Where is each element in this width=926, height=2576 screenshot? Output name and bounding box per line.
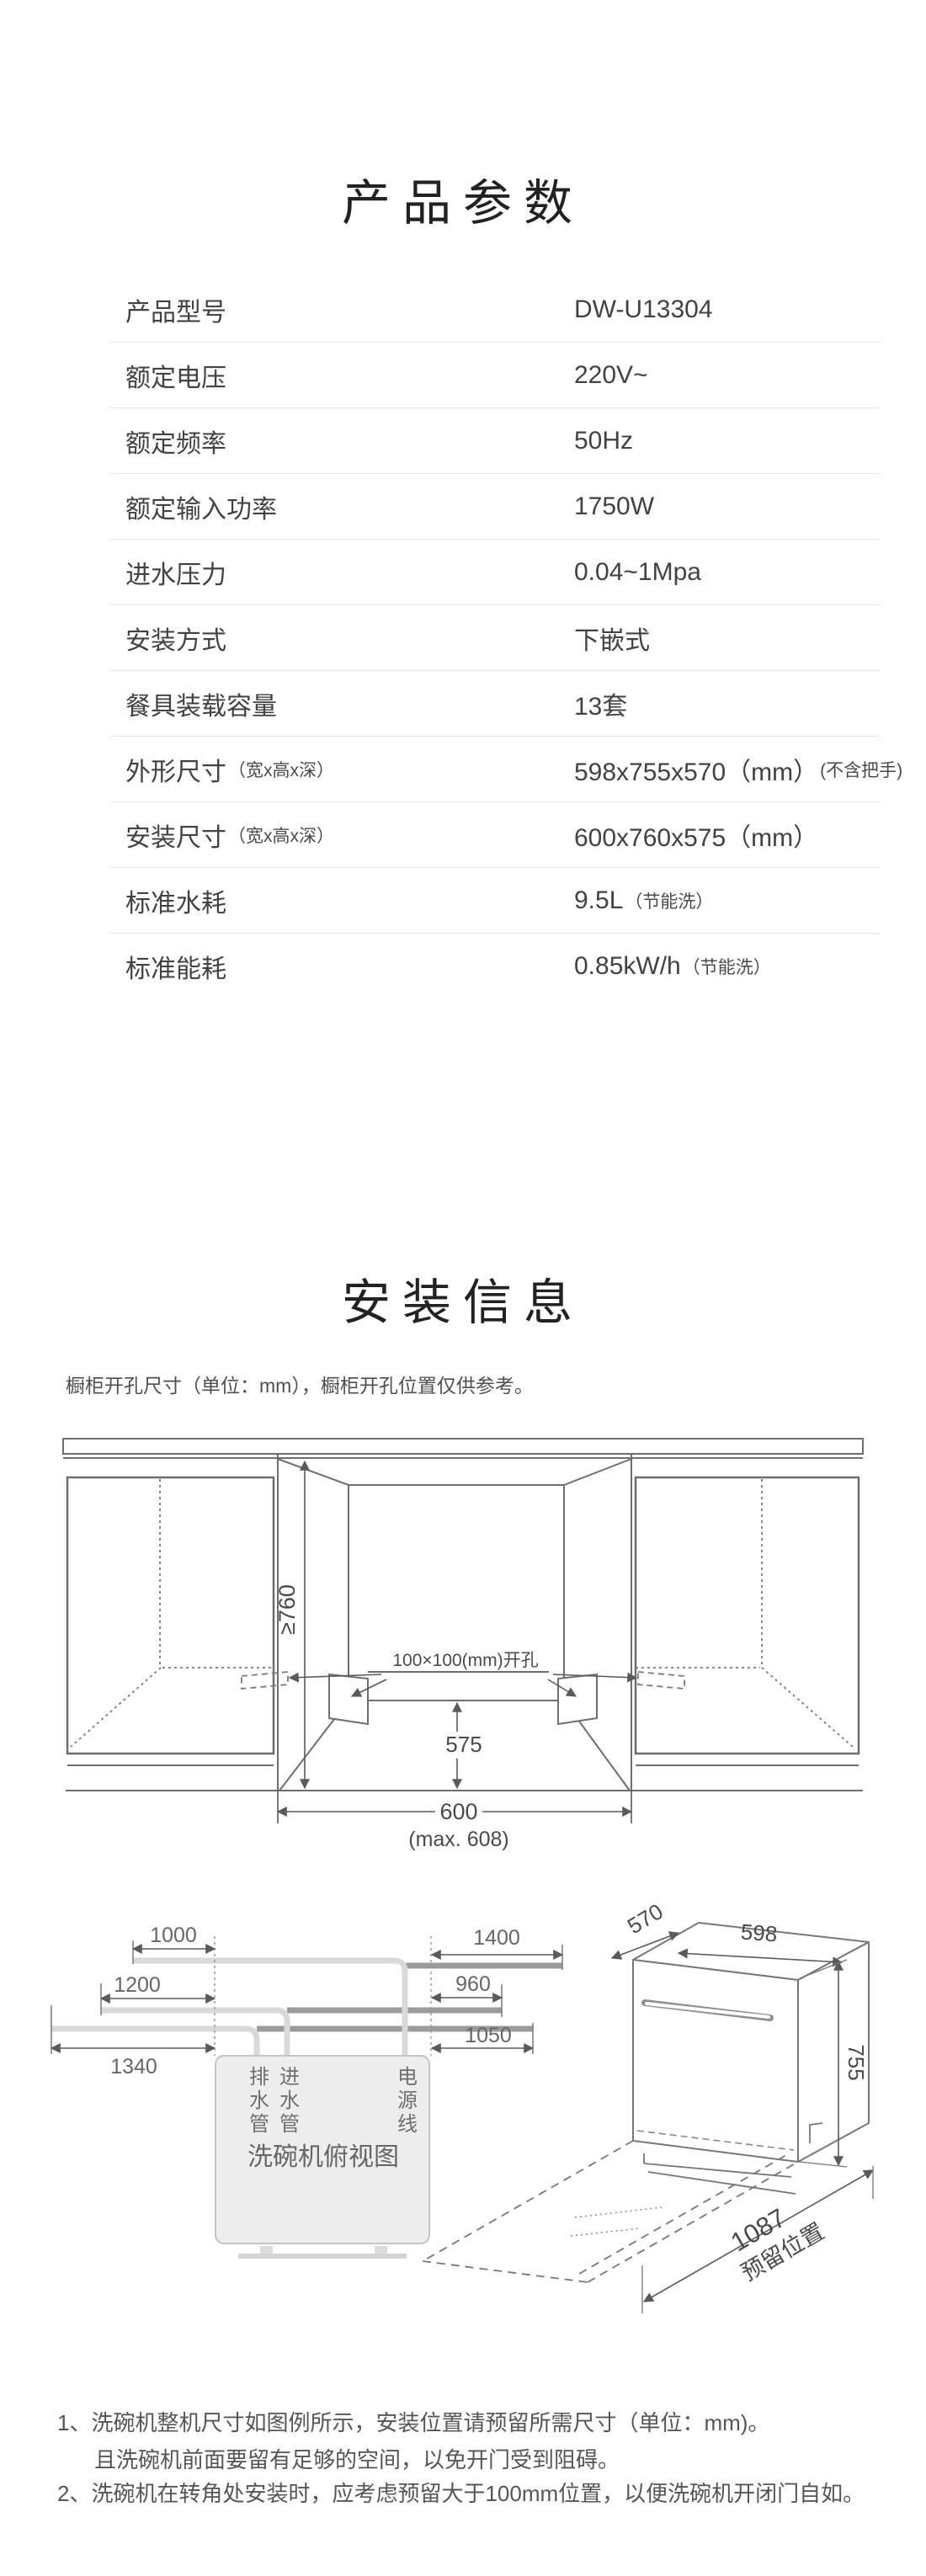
table-row: 标准水耗 9.5L（节能洗） xyxy=(109,868,880,934)
install-note: 橱柜开孔尺寸（单位：mm），橱柜开孔位置仅供参考。 xyxy=(66,1370,534,1398)
table-row: 额定频率 50Hz xyxy=(109,408,880,474)
table-row: 进水压力 0.04~1Mpa xyxy=(109,540,880,605)
hookup-and-machine-diagram: 1000 1200 1340 1400 960 1050 排水管 进水管 电源线… xyxy=(0,1903,926,2374)
spec-value: 50Hz xyxy=(574,408,635,473)
cabinet-cutout-diagram: ≥760 100×100(mm)开孔 575 600 (max. 608) xyxy=(0,1431,926,1903)
power-cord-label: 电源线 xyxy=(394,2066,418,2137)
footnote-1-line-2: 且洗碗机前面要留有足够的空间，以免开门受到阻碍。 xyxy=(94,2443,620,2474)
spec-value: 0.04~1Mpa xyxy=(574,540,703,604)
spec-value: DW-U13304 xyxy=(574,277,715,342)
spec-label: 安装方式 xyxy=(125,605,228,670)
dim-label-1400: 1400 xyxy=(473,1926,520,1950)
dim-label-1340: 1340 xyxy=(110,2055,157,2078)
dim-label-570: 570 xyxy=(623,1903,668,1939)
topview-title: 洗碗机俯视图 xyxy=(247,2143,399,2171)
table-row: 餐具装载容量 13套 xyxy=(109,671,880,737)
section-title-specs: 产品参数 xyxy=(0,163,926,234)
table-row: 安装尺寸（宽x高x深） 600x760x575（mm） xyxy=(109,802,880,868)
spec-value: 0.85kW/h（节能洗） xyxy=(574,934,771,998)
spec-label: 餐具装载容量 xyxy=(125,671,279,736)
dim-label-755: 755 xyxy=(844,2044,869,2080)
section-title-install: 安装信息 xyxy=(0,1263,926,1333)
dim-label-1050: 1050 xyxy=(465,2024,512,2047)
base-plate xyxy=(238,2254,407,2259)
dim-label-600: 600 xyxy=(439,1799,477,1824)
spec-label: 产品型号 xyxy=(125,277,228,342)
spec-label: 标准能耗 xyxy=(125,934,228,998)
spec-value: 598x755x570（mm）(不含把手) xyxy=(574,737,902,801)
dim-label-1200: 1200 xyxy=(114,1973,161,1997)
dim-label-height: ≥760 xyxy=(274,1584,300,1635)
table-row: 产品型号 DW-U13304 xyxy=(109,277,880,343)
spec-label: 外形尺寸（宽x高x深） xyxy=(125,737,334,801)
spec-label: 额定频率 xyxy=(125,408,228,473)
dim-label-960: 960 xyxy=(455,1972,491,1996)
product-detail-page: 产品参数 产品型号 DW-U13304 额定电压 220V~ 额定频率 50Hz… xyxy=(0,0,926,2576)
dim-label-1000: 1000 xyxy=(150,1924,197,1947)
spec-label: 进水压力 xyxy=(125,540,228,604)
foot-right xyxy=(375,2246,387,2254)
spec-label: 安装尺寸（宽x高x深） xyxy=(125,802,334,867)
dim-label-max608: (max. 608) xyxy=(408,1828,508,1851)
table-row: 标准能耗 0.85kW/h（节能洗） xyxy=(109,934,880,998)
left-hole-cutout xyxy=(329,1674,368,1724)
footnote-2: 2、洗碗机在转角处安装时，应考虑预留大于100mm位置，以便洗碗机开闭门自如。 xyxy=(57,2477,865,2508)
table-row: 安装方式 下嵌式 xyxy=(109,605,880,671)
spec-value: 13套 xyxy=(574,671,629,736)
drain-pipe-label: 排水管 xyxy=(246,2066,269,2137)
left-cabinet xyxy=(67,1477,274,1754)
spec-value: 220V~ xyxy=(574,343,650,407)
spec-value: 1750W xyxy=(574,474,656,539)
drain-pipe-left xyxy=(51,2029,257,2056)
footnote-1-line-1: 1、洗碗机整机尺寸如图例所示，安装位置请预留所需尺寸（单位：mm)。 xyxy=(57,2406,769,2437)
right-hole-cutout xyxy=(558,1674,597,1724)
right-cabinet xyxy=(636,1477,859,1754)
table-row: 额定电压 220V~ xyxy=(109,343,880,408)
spec-table: 产品型号 DW-U13304 额定电压 220V~ 额定频率 50Hz 额定输入… xyxy=(109,277,880,998)
spec-label: 额定输入功率 xyxy=(125,474,279,539)
machine-front-face xyxy=(633,1960,798,2162)
dim-label-575: 575 xyxy=(445,1732,482,1757)
dim-label-598: 598 xyxy=(740,1919,778,1947)
spec-value: 下嵌式 xyxy=(574,605,652,670)
spec-label: 标准水耗 xyxy=(125,868,228,933)
hole-size-label: 100×100(mm)开孔 xyxy=(392,1651,538,1670)
spec-value: 600x760x575（mm） xyxy=(574,802,820,867)
countertop xyxy=(63,1439,863,1454)
spec-value: 9.5L（节能洗） xyxy=(574,868,713,933)
table-row: 额定输入功率 1750W xyxy=(109,474,880,540)
table-row: 外形尺寸（宽x高x深） 598x755x570（mm）(不含把手) xyxy=(109,737,880,802)
inlet-pipe-label: 进水管 xyxy=(276,2066,300,2137)
spec-label: 额定电压 xyxy=(125,343,228,407)
foot-left xyxy=(260,2246,273,2254)
